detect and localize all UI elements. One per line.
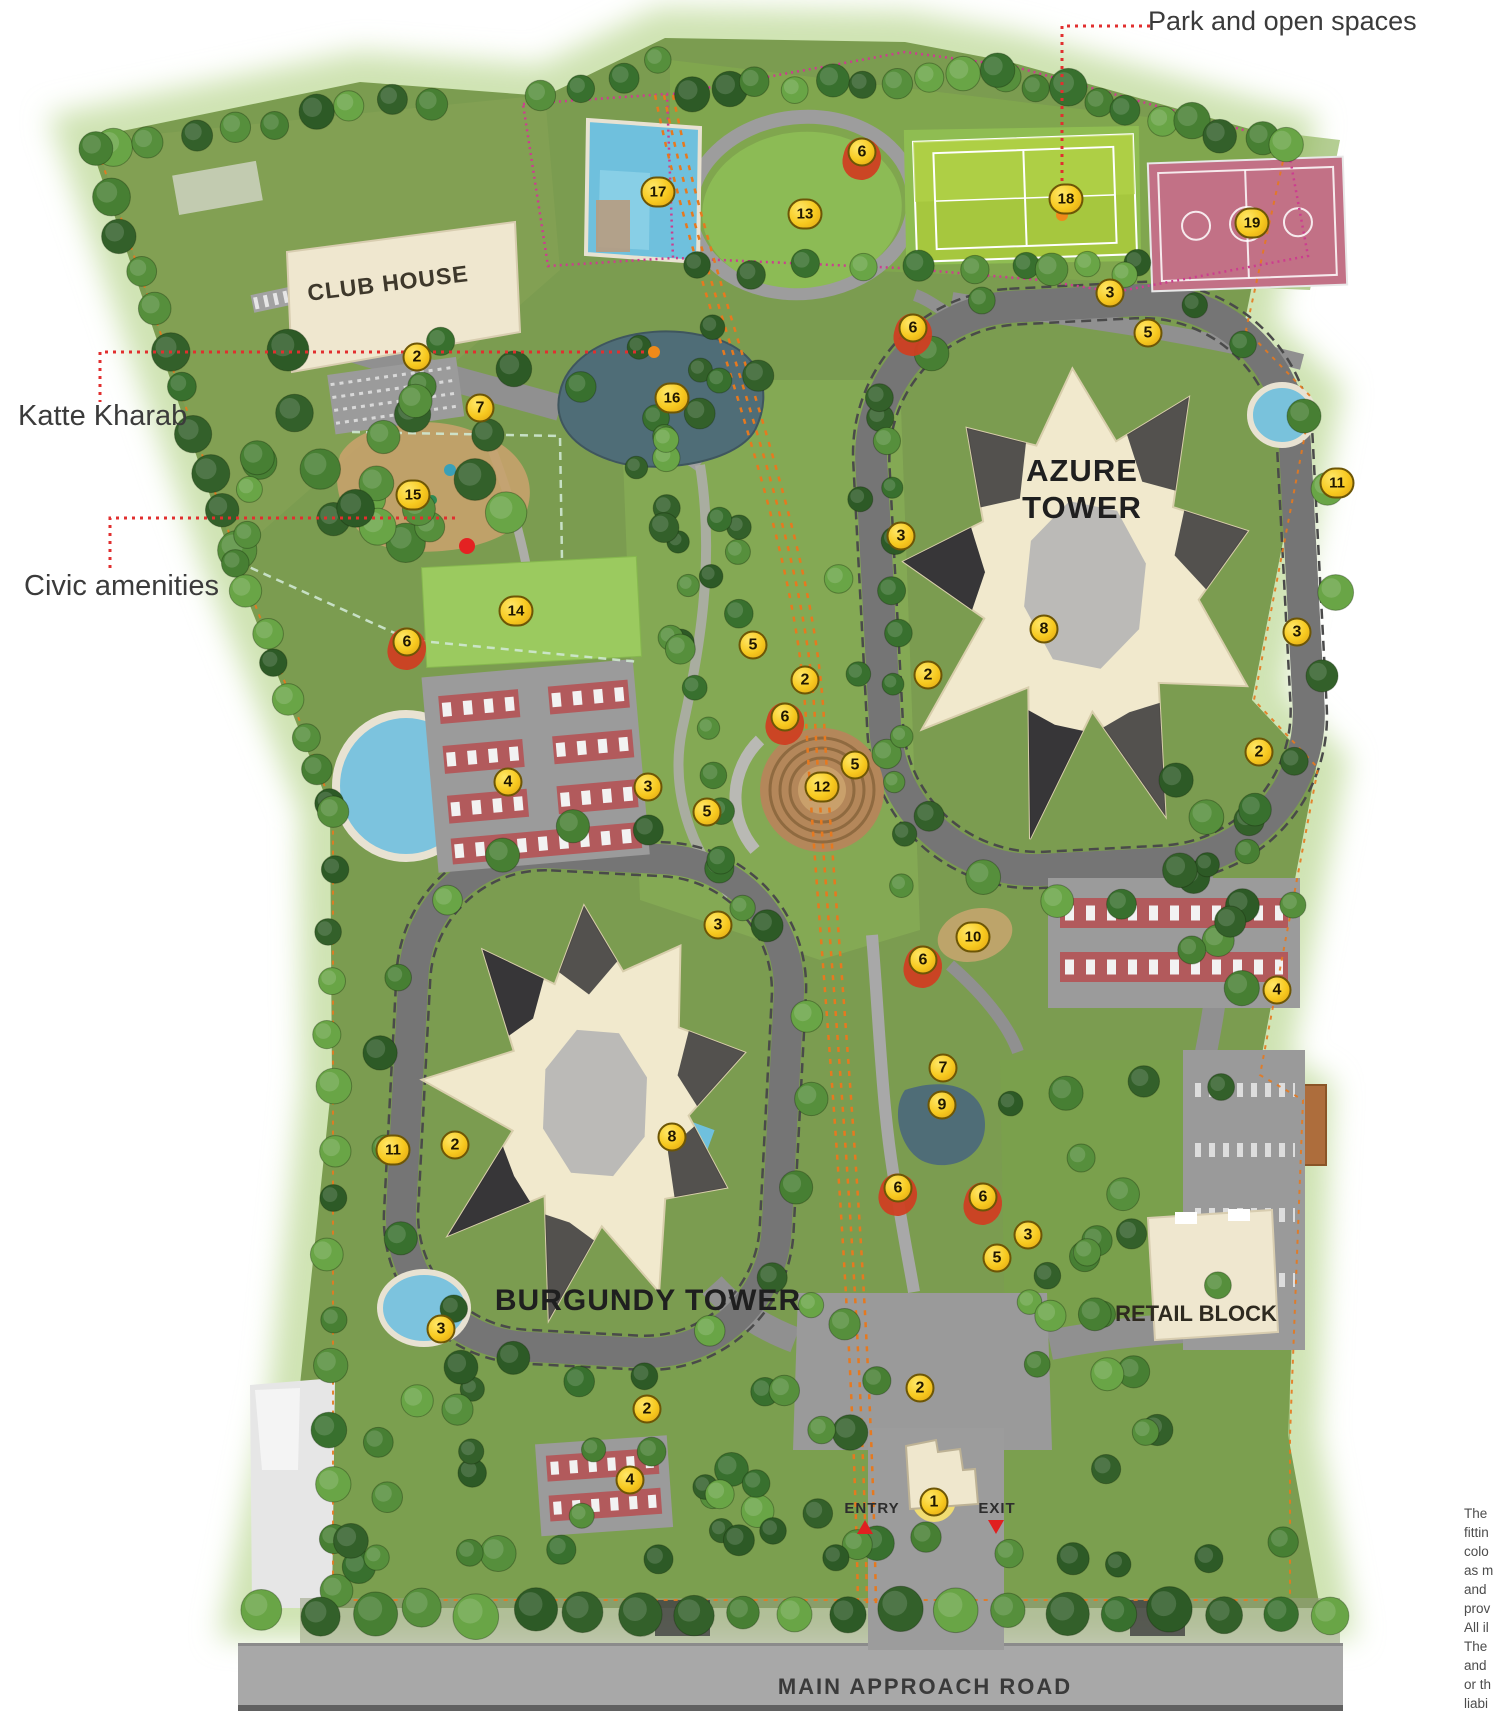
main-approach-road-label: MAIN APPROACH ROAD [775,1674,1075,1700]
annotation-park-open-spaces: Park and open spaces [1148,6,1417,37]
exit-label: EXIT [957,1500,1037,1517]
azure-tower-label: AZURE TOWER [982,452,1182,526]
entry-arrow-icon [857,1520,873,1534]
map-marker-2: 2 [906,1374,935,1403]
map-marker-17: 17 [641,177,676,208]
map-marker-14: 14 [499,596,534,627]
map-marker-3: 3 [1014,1221,1043,1250]
map-marker-7: 7 [929,1054,958,1083]
burgundy-tower-label: BURGUNDY TOWER [448,1284,848,1318]
map-marker-3: 3 [634,773,663,802]
marker-layer: 1761318193652167111531483652262541235310… [0,0,1500,1714]
map-marker-6: 6 [909,946,938,975]
map-marker-6: 6 [393,628,422,657]
map-marker-6: 6 [969,1183,998,1212]
map-marker-2: 2 [791,666,820,695]
map-marker-5: 5 [693,798,722,827]
map-marker-4: 4 [494,768,523,797]
map-marker-2: 2 [1245,738,1274,767]
map-marker-1: 1 [920,1488,949,1517]
map-marker-5: 5 [983,1244,1012,1273]
map-marker-7: 7 [466,394,495,423]
map-marker-13: 13 [788,199,823,230]
map-marker-15: 15 [396,480,431,511]
map-marker-11: 11 [376,1135,411,1166]
map-marker-2: 2 [633,1395,662,1424]
map-marker-8: 8 [1030,615,1059,644]
map-marker-3: 3 [887,522,916,551]
map-marker-11: 11 [1320,468,1355,499]
retail-block-label: RETAIL BLOCK [1096,1301,1296,1327]
map-marker-16: 16 [655,383,690,414]
map-marker-2: 2 [441,1131,470,1160]
map-marker-6: 6 [771,703,800,732]
map-marker-5: 5 [739,631,768,660]
map-marker-4: 4 [1263,976,1292,1005]
map-marker-2: 2 [914,661,943,690]
map-marker-2: 2 [403,343,432,372]
map-marker-6: 6 [884,1174,913,1203]
site-plan: 1761318193652167111531483652262541235310… [0,0,1500,1714]
map-marker-3: 3 [704,911,733,940]
map-marker-3: 3 [1283,618,1312,647]
map-marker-10: 10 [956,922,991,953]
exit-arrow-icon [988,1520,1004,1534]
map-marker-8: 8 [658,1123,687,1152]
map-marker-9: 9 [928,1091,957,1120]
annotation-katte-kharab: Katte Kharab [18,400,187,433]
map-marker-3: 3 [427,1315,456,1344]
map-marker-19: 19 [1235,208,1270,239]
map-marker-18: 18 [1049,184,1084,215]
entry-label: ENTRY [832,1500,912,1517]
map-marker-5: 5 [1134,319,1163,348]
disclaimer-text: Thefittincoloas mandprovAll ilTheandor t… [1464,1504,1500,1713]
map-marker-6: 6 [848,138,877,167]
map-marker-5: 5 [841,751,870,780]
map-marker-3: 3 [1096,279,1125,308]
map-marker-12: 12 [805,772,840,803]
map-marker-4: 4 [616,1466,645,1495]
annotation-civic-amenities: Civic amenities [24,570,219,603]
map-marker-6: 6 [899,314,928,343]
